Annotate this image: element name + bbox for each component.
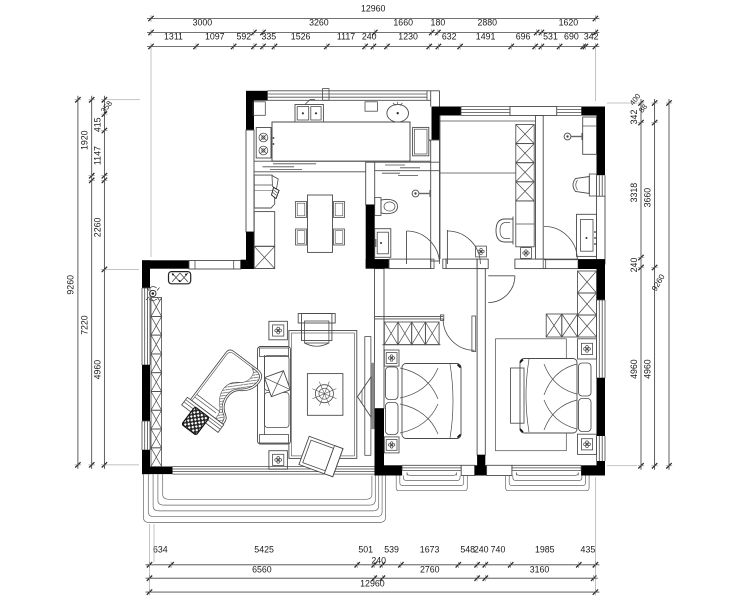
svg-text:634: 634 bbox=[153, 545, 168, 555]
svg-text:180: 180 bbox=[431, 18, 446, 28]
svg-text:1147: 1147 bbox=[93, 146, 103, 165]
svg-text:1117: 1117 bbox=[337, 32, 355, 42]
svg-text:3318: 3318 bbox=[629, 183, 639, 203]
svg-text:2880: 2880 bbox=[478, 18, 498, 28]
svg-text:740: 740 bbox=[491, 545, 506, 555]
svg-text:501: 501 bbox=[358, 545, 373, 555]
svg-text:12960: 12960 bbox=[361, 4, 386, 14]
svg-text:240: 240 bbox=[629, 258, 639, 273]
svg-text:2760: 2760 bbox=[420, 565, 440, 575]
svg-text:1230: 1230 bbox=[398, 32, 418, 42]
svg-text:7220: 7220 bbox=[80, 315, 90, 335]
svg-text:1920: 1920 bbox=[80, 130, 90, 150]
svg-text:240: 240 bbox=[362, 32, 377, 42]
svg-text:1526: 1526 bbox=[291, 32, 311, 42]
svg-text:1097: 1097 bbox=[205, 32, 225, 42]
svg-text:240: 240 bbox=[371, 556, 386, 566]
svg-text:9260: 9260 bbox=[66, 275, 76, 295]
svg-text:1311: 1311 bbox=[164, 32, 183, 42]
svg-text:3660: 3660 bbox=[643, 188, 653, 208]
svg-text:4960: 4960 bbox=[93, 360, 103, 380]
svg-text:6560: 6560 bbox=[252, 565, 272, 575]
svg-text:3260: 3260 bbox=[309, 18, 329, 28]
svg-text:592: 592 bbox=[236, 32, 251, 42]
svg-text:335: 335 bbox=[261, 32, 276, 42]
svg-text:539: 539 bbox=[384, 545, 399, 555]
svg-text:1660: 1660 bbox=[393, 18, 413, 28]
svg-text:3000: 3000 bbox=[193, 18, 213, 28]
svg-text:240: 240 bbox=[474, 545, 489, 555]
svg-text:4960: 4960 bbox=[643, 359, 653, 379]
svg-text:1620: 1620 bbox=[559, 18, 579, 28]
svg-text:1673: 1673 bbox=[420, 545, 440, 555]
svg-text:1491: 1491 bbox=[476, 32, 496, 42]
svg-text:1985: 1985 bbox=[535, 545, 555, 555]
svg-text:5425: 5425 bbox=[254, 545, 274, 555]
svg-text:531: 531 bbox=[543, 32, 558, 42]
svg-text:415: 415 bbox=[93, 117, 103, 132]
svg-text:12960: 12960 bbox=[360, 579, 385, 589]
svg-text:342: 342 bbox=[584, 32, 599, 42]
svg-text:3160: 3160 bbox=[530, 565, 550, 575]
svg-text:690: 690 bbox=[564, 32, 579, 42]
svg-text:696: 696 bbox=[516, 32, 531, 42]
svg-text:2260: 2260 bbox=[93, 218, 103, 238]
svg-text:4960: 4960 bbox=[629, 359, 639, 379]
svg-text:435: 435 bbox=[581, 545, 596, 555]
svg-text:632: 632 bbox=[442, 32, 457, 42]
svg-text:342: 342 bbox=[629, 110, 639, 125]
